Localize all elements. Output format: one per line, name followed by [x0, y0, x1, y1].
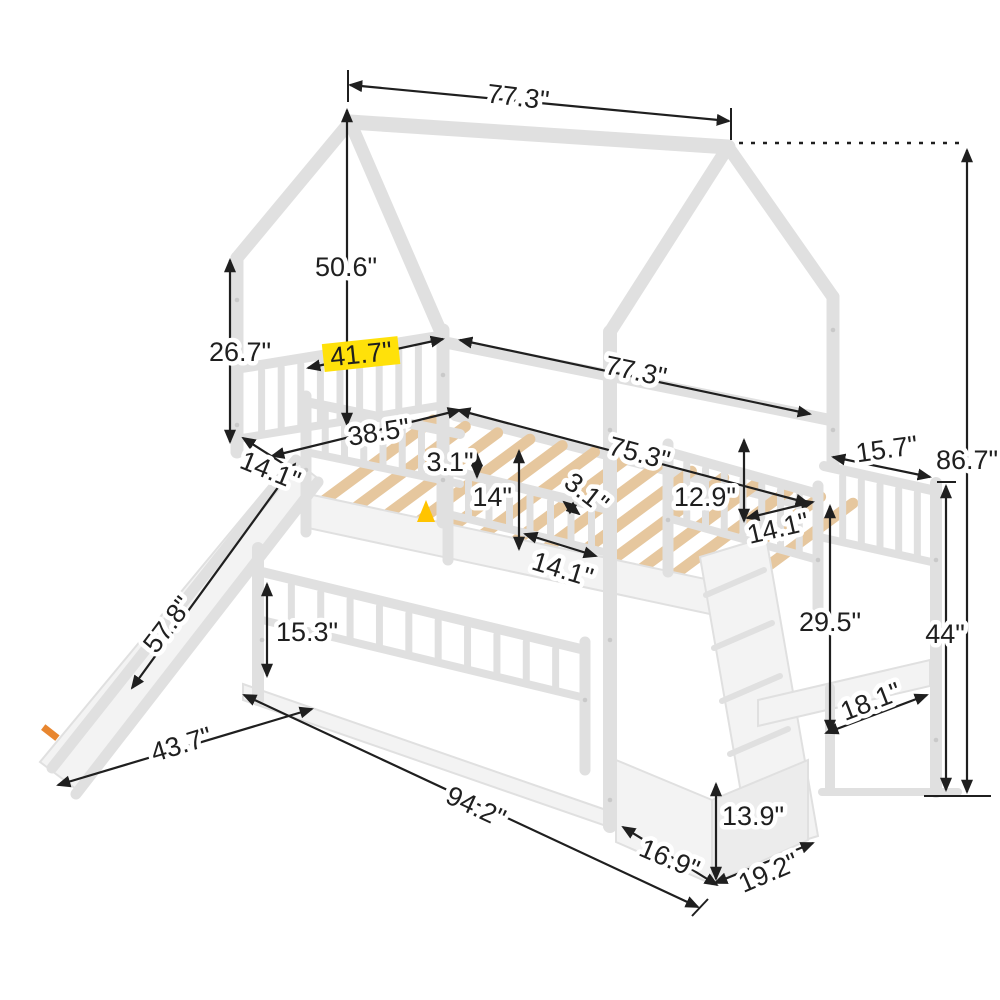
dim-peak-height: 50.6": [315, 252, 377, 282]
dimension-diagram: 77.3" 50.6" 26.7" 41.7" 77.3" 38.5" 14.1…: [0, 0, 1000, 1000]
dim-total-height: 86.7": [936, 445, 998, 475]
screw-dot: [816, 558, 821, 563]
screw-dot: [831, 328, 836, 333]
dim-headboard-width-group: 41.7": [322, 335, 401, 373]
screw-dot: [934, 558, 939, 563]
screw-dot: [260, 638, 265, 643]
dim-stair-rail-height: 29.5": [799, 607, 861, 637]
screw-dot: [441, 373, 446, 378]
dim-post-above-rail: 26.7": [209, 337, 271, 367]
lower-floor-rail: [243, 684, 612, 828]
screw-dot: [934, 738, 939, 743]
dim-stair-top-depth: 15.7": [854, 430, 920, 468]
screw-dot: [441, 478, 446, 483]
house-roof-frame: [237, 122, 833, 332]
dim-lower-guard-height: 15.3": [276, 617, 338, 647]
dim-stair-height: 44": [925, 619, 965, 649]
dim-headboard-width: 41.7": [329, 336, 394, 372]
screw-dot: [608, 798, 613, 803]
screw-dot: [235, 298, 240, 303]
dim-drawer-height: 13.9": [722, 801, 784, 831]
slide-sticker-icon: [41, 724, 59, 741]
screw-dot: [666, 518, 671, 523]
screw-dot: [831, 428, 836, 433]
screw-dot: [583, 698, 588, 703]
bunk-bed-diagram-canvas: 77.3" 50.6" 26.7" 41.7" 77.3" 38.5" 14.1…: [0, 0, 1000, 1000]
screw-dot: [608, 428, 613, 433]
screw-dot: [608, 638, 613, 643]
dim-slat-thickness-a: 3.1": [426, 447, 473, 477]
dim-right-guard-height: 12.9": [674, 482, 736, 512]
dim-slide-span: 43.7": [147, 721, 215, 768]
dim-roof-ridge: 77.3": [485, 78, 550, 115]
dim-center-guard-height: 14": [472, 482, 512, 512]
screw-dot: [235, 423, 240, 428]
